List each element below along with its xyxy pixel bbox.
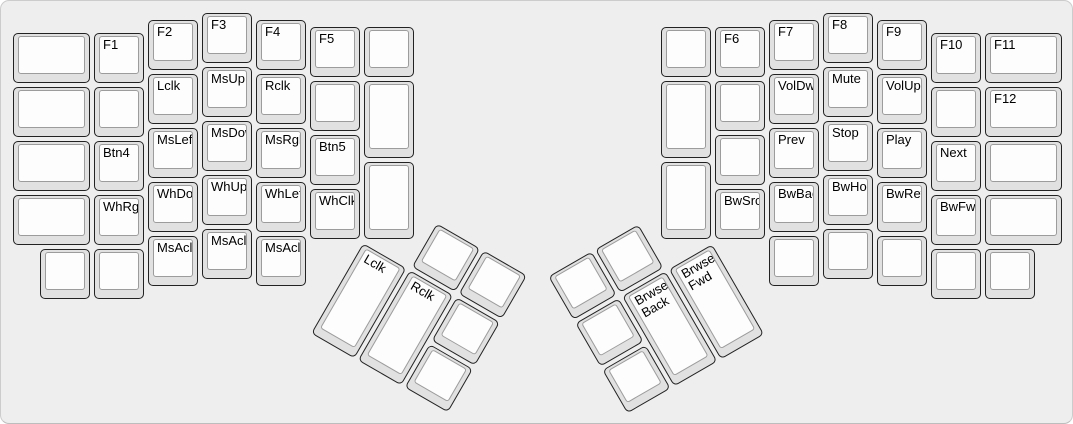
key-blank[interactable]: [661, 81, 711, 158]
key-whleft[interactable]: WhLeft: [256, 182, 306, 232]
key-face: F9: [882, 23, 922, 61]
key-face: [990, 198, 1057, 236]
key-face: F12: [990, 90, 1057, 128]
key-face: [369, 30, 409, 68]
key-blank[interactable]: [364, 27, 414, 77]
key-face: BwBack: [774, 185, 814, 223]
key-msacl1[interactable]: MsAcl1: [202, 229, 252, 279]
key-face: MsLeft: [153, 131, 193, 169]
key-face: [414, 349, 468, 402]
key-f12[interactable]: F12: [985, 87, 1062, 137]
key-f8[interactable]: F8: [823, 13, 873, 63]
key-face: [990, 144, 1057, 182]
key-msup[interactable]: MsUp: [202, 67, 252, 117]
key-face: [468, 255, 522, 308]
key-label: Lclk: [358, 249, 399, 282]
key-f7[interactable]: F7: [769, 20, 819, 70]
key-label: WhRght: [100, 199, 138, 216]
key-face: [581, 303, 635, 356]
key-label: [883, 240, 921, 242]
key-f3[interactable]: F3: [202, 13, 252, 63]
key-label: [439, 230, 473, 251]
key-label: Play: [883, 132, 921, 149]
key-face: MsAcl1: [207, 232, 247, 270]
key-label: [370, 166, 408, 168]
key-label: Prev: [775, 132, 813, 149]
key-face: WhClk: [315, 192, 355, 230]
key-face: F5: [315, 30, 355, 68]
key-face: Mute: [828, 70, 868, 108]
key-label: [937, 253, 975, 255]
key-blank[interactable]: [823, 229, 873, 279]
key-label: [316, 85, 354, 87]
key-face: BwRefr: [882, 185, 922, 223]
key-label: MsAcl1: [208, 233, 246, 250]
key-face: [99, 252, 139, 290]
key-stop[interactable]: Stop: [823, 121, 873, 171]
key-label: Brwser Back: [629, 277, 677, 323]
key-label: [721, 139, 759, 141]
key-label: BwBack: [775, 186, 813, 203]
key-label: [486, 257, 520, 278]
key-f5[interactable]: F5: [310, 27, 360, 77]
key-label: BwSrch: [721, 193, 759, 210]
key-face: WhLeft: [261, 185, 301, 223]
key-face: Lclk: [153, 77, 193, 115]
key-label: BwRefr: [883, 186, 921, 203]
key-msacl0[interactable]: MsAcl0: [148, 236, 198, 286]
key-face: [441, 302, 495, 355]
key-label: VolDwn: [775, 78, 813, 95]
key-blank[interactable]: [985, 249, 1035, 299]
key-msleft[interactable]: MsLeft: [148, 128, 198, 178]
key-face: F1: [99, 36, 139, 74]
key-voldwn[interactable]: VolDwn: [769, 74, 819, 124]
key-face: [828, 232, 868, 270]
key-face: F6: [720, 30, 760, 68]
key-face: [608, 350, 662, 403]
key-f11[interactable]: F11: [985, 33, 1062, 83]
key-label: [100, 253, 138, 255]
key-label: WhClk: [316, 193, 354, 210]
key-label: [667, 166, 705, 168]
keyboard-layout-canvas: F1Btn4WhRghtF2LclkMsLeftWhDownMsAcl0F3Ms…: [0, 0, 1073, 424]
key-face: MsAcl2: [261, 239, 301, 277]
key-face: [774, 239, 814, 277]
key-label: [991, 145, 1056, 147]
key-mute[interactable]: Mute: [823, 67, 873, 117]
key-prev[interactable]: Prev: [769, 128, 819, 178]
key-msdown[interactable]: MsDown: [202, 121, 252, 171]
key-face: Next: [936, 144, 976, 182]
key-face: Prev: [774, 131, 814, 169]
key-blank[interactable]: [931, 87, 981, 137]
key-label: WhDown: [154, 186, 192, 203]
key-label: F10: [937, 37, 975, 54]
key-label: BwFwd: [937, 199, 975, 216]
key-label: WhLeft: [262, 186, 300, 203]
key-face: [18, 144, 85, 182]
key-bwhome[interactable]: BwHome: [823, 175, 873, 225]
key-whdown[interactable]: WhDown: [148, 182, 198, 232]
key-blank[interactable]: [985, 195, 1062, 245]
key-f1[interactable]: F1: [94, 33, 144, 83]
key-face: [315, 84, 355, 122]
key-blank[interactable]: [310, 81, 360, 131]
key-label: F6: [721, 31, 759, 48]
key-label: MsDown: [208, 125, 246, 142]
key-bwsrch[interactable]: BwSrch: [715, 189, 765, 239]
key-blank[interactable]: [94, 87, 144, 137]
key-label: [46, 253, 84, 255]
key-label: MsAcl2: [262, 240, 300, 257]
key-label: F7: [775, 24, 813, 41]
key-label: [667, 31, 705, 33]
key-face: [990, 252, 1030, 290]
key-blank[interactable]: [661, 27, 711, 77]
key-label: [19, 91, 84, 93]
key-blank[interactable]: [715, 135, 765, 185]
key-face: WhDown: [153, 185, 193, 223]
key-face: [666, 165, 706, 230]
key-label: [370, 85, 408, 87]
key-label: F9: [883, 24, 921, 41]
key-label: F4: [262, 24, 300, 41]
key-blank[interactable]: [94, 249, 144, 299]
key-blank[interactable]: [877, 236, 927, 286]
key-label: [829, 233, 867, 235]
key-face: [369, 84, 409, 149]
key-face: F4: [261, 23, 301, 61]
key-face: BwFwd: [936, 198, 976, 236]
key-whclk[interactable]: WhClk: [310, 189, 360, 239]
key-face: F7: [774, 23, 814, 61]
key-label: [555, 258, 589, 279]
key-face: [936, 90, 976, 128]
key-label: VolUp: [883, 78, 921, 95]
key-next[interactable]: Next: [931, 141, 981, 191]
key-label: [100, 91, 138, 93]
key-face: WhRght: [99, 198, 139, 236]
key-face: VolDwn: [774, 77, 814, 115]
key-label: [19, 199, 84, 201]
key-f6[interactable]: F6: [715, 27, 765, 77]
key-label: F8: [829, 17, 867, 34]
key-label: MsUp: [208, 71, 246, 88]
key-face: BwHome: [828, 178, 868, 216]
key-blank[interactable]: [769, 236, 819, 286]
key-face: Play: [882, 131, 922, 169]
key-face: F8: [828, 16, 868, 54]
key-face: [18, 198, 85, 236]
key-label: F1: [100, 37, 138, 54]
key-face: BwSrch: [720, 192, 760, 230]
key-face: [369, 165, 409, 230]
key-face: WhUp: [207, 178, 247, 216]
key-face: VolUp: [882, 77, 922, 115]
key-blank[interactable]: [931, 249, 981, 299]
key-face: [720, 138, 760, 176]
key-face: MsRght: [261, 131, 301, 169]
key-f2[interactable]: F2: [148, 20, 198, 70]
key-label: Next: [937, 145, 975, 162]
key-blank[interactable]: [13, 33, 90, 83]
key-msacl2[interactable]: MsAcl2: [256, 236, 306, 286]
key-label: F12: [991, 91, 1056, 108]
key-label: [667, 85, 705, 87]
key-f4[interactable]: F4: [256, 20, 306, 70]
key-label: [19, 37, 84, 39]
key-f9[interactable]: F9: [877, 20, 927, 70]
key-face: [936, 252, 976, 290]
key-face: [666, 84, 706, 149]
key-lclk[interactable]: Lclk: [148, 74, 198, 124]
key-blank[interactable]: [40, 249, 90, 299]
key-face: MsDown: [207, 124, 247, 162]
key-label: F11: [991, 37, 1056, 54]
key-face: [601, 229, 655, 282]
key-face: F3: [207, 16, 247, 54]
key-face: F11: [990, 36, 1057, 74]
key-f10[interactable]: F10: [931, 33, 981, 83]
key-label: F3: [208, 17, 246, 34]
key-whup[interactable]: WhUp: [202, 175, 252, 225]
key-face: MsUp: [207, 70, 247, 108]
key-btn5[interactable]: Btn5: [310, 135, 360, 185]
key-blank[interactable]: [13, 87, 90, 137]
key-label: [19, 145, 84, 147]
key-blank[interactable]: [661, 162, 711, 239]
key-label: Btn5: [316, 139, 354, 156]
key-label: MsRght: [262, 132, 300, 149]
key-label: [991, 199, 1056, 201]
key-face: [18, 90, 85, 128]
key-label: MsLeft: [154, 132, 192, 149]
key-rclk[interactable]: Rclk: [256, 74, 306, 124]
key-bwfwd[interactable]: BwFwd: [931, 195, 981, 245]
key-label: Brwser Fwd: [676, 250, 724, 296]
key-blank[interactable]: [13, 141, 90, 191]
key-blank[interactable]: [364, 81, 414, 158]
key-whrght[interactable]: WhRght: [94, 195, 144, 245]
key-label: [991, 253, 1029, 255]
key-label: BwHome: [829, 179, 867, 196]
key-face: [18, 36, 85, 74]
key-face: [666, 30, 706, 68]
key-face: [421, 228, 475, 281]
key-play[interactable]: Play: [877, 128, 927, 178]
key-label: Mute: [829, 71, 867, 88]
key-blank[interactable]: [364, 162, 414, 239]
key-label: WhUp: [208, 179, 246, 196]
key-label: Btn4: [100, 145, 138, 162]
key-face: [882, 239, 922, 277]
key-bwrefr[interactable]: BwRefr: [877, 182, 927, 232]
key-label: F5: [316, 31, 354, 48]
key-volup[interactable]: VolUp: [877, 74, 927, 124]
key-face: Rclk: [261, 77, 301, 115]
key-label: [370, 31, 408, 33]
key-face: MsAcl0: [153, 239, 193, 277]
key-face: [554, 256, 608, 309]
key-label: Lclk: [154, 78, 192, 95]
key-label: F2: [154, 24, 192, 41]
key-blank[interactable]: [13, 195, 90, 245]
key-msrght[interactable]: MsRght: [256, 128, 306, 178]
key-label: Rclk: [262, 78, 300, 95]
key-label: [721, 85, 759, 87]
key-face: F10: [936, 36, 976, 74]
key-face: [720, 84, 760, 122]
key-face: Btn5: [315, 138, 355, 176]
key-btn4[interactable]: Btn4: [94, 141, 144, 191]
key-blank[interactable]: [985, 141, 1062, 191]
key-bwback[interactable]: BwBack: [769, 182, 819, 232]
key-label: [602, 231, 636, 252]
main-keys-layer: F1Btn4WhRghtF2LclkMsLeftWhDownMsAcl0F3Ms…: [1, 1, 1073, 424]
key-face: [99, 90, 139, 128]
key-label: Stop: [829, 125, 867, 142]
key-face: [45, 252, 85, 290]
key-face: Stop: [828, 124, 868, 162]
key-face: F2: [153, 23, 193, 61]
key-face: Btn4: [99, 144, 139, 182]
key-label: [775, 240, 813, 242]
key-label: [937, 91, 975, 93]
key-blank[interactable]: [715, 81, 765, 131]
key-label: MsAcl0: [154, 240, 192, 257]
